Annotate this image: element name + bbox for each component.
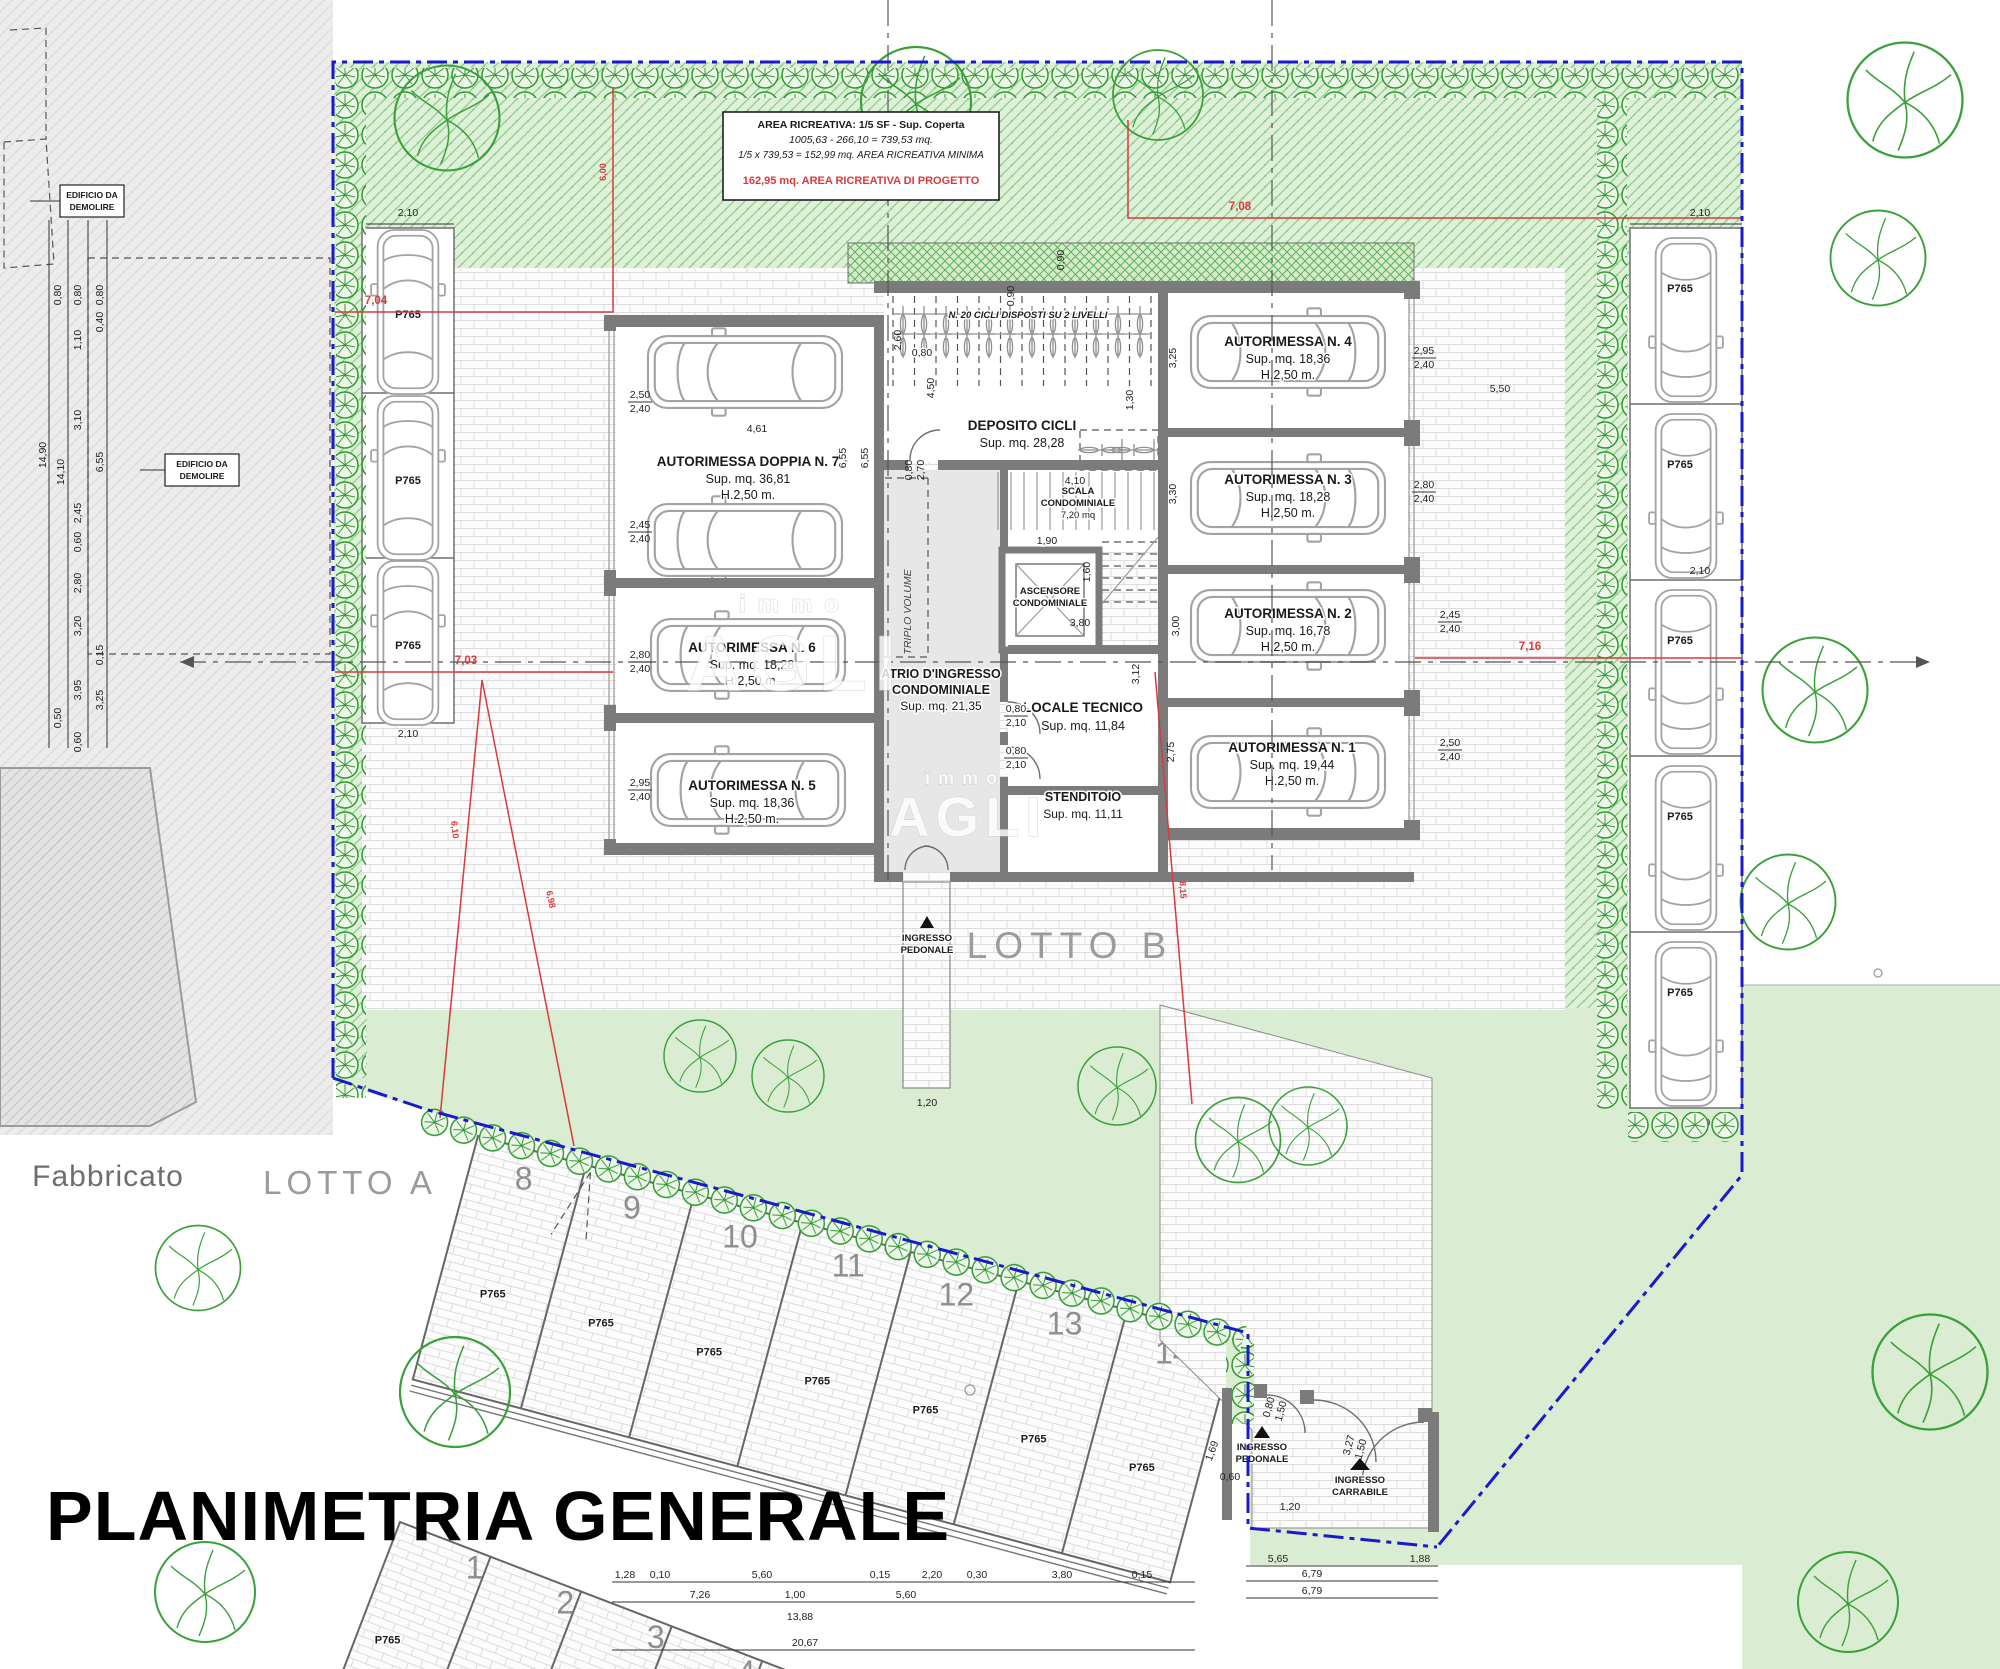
svg-text:13,88: 13,88	[787, 1611, 813, 1623]
svg-text:AUTORIMESSA N. 1: AUTORIMESSA N. 1	[1228, 740, 1356, 755]
svg-text:7,26: 7,26	[690, 1589, 711, 1601]
svg-text:3,80: 3,80	[1070, 617, 1091, 629]
svg-text:2,10: 2,10	[1006, 717, 1027, 729]
walkway-label: INGRESSO	[902, 933, 952, 944]
svg-text:2,50: 2,50	[1440, 737, 1461, 749]
svg-text:AUTORIMESSA N. 3: AUTORIMESSA N. 3	[1224, 472, 1352, 487]
area-box-line2: 1005,63 - 266,10 = 739,53 mq.	[789, 134, 933, 146]
svg-text:SCALA: SCALA	[1062, 486, 1095, 497]
svg-text:0,80: 0,80	[52, 285, 64, 306]
svg-text:CONDOMINIALE: CONDOMINIALE	[1041, 498, 1115, 509]
stall-code: P765	[1667, 635, 1693, 647]
stall-code: P765	[913, 1404, 939, 1416]
svg-text:3,80: 3,80	[1052, 1569, 1073, 1581]
svg-text:Sup. mq. 16,78: Sup. mq. 16,78	[1246, 624, 1331, 638]
car-icon	[648, 496, 842, 583]
svg-text:5,50: 5,50	[1490, 383, 1511, 395]
stall-code: P765	[1667, 987, 1693, 999]
svg-text:AUTORIMESSA N. 4: AUTORIMESSA N. 4	[1224, 334, 1352, 349]
svg-text:2,10: 2,10	[1006, 759, 1027, 771]
pedestrian-gate-label: INGRESSO	[1237, 1442, 1287, 1453]
svg-text:0,80: 0,80	[1006, 745, 1027, 757]
stall-code: P765	[1667, 811, 1693, 823]
red-dimension: 7,04	[365, 295, 388, 307]
svg-text:5,65: 5,65	[1268, 1553, 1289, 1565]
svg-text:6,79: 6,79	[1302, 1568, 1323, 1580]
svg-text:2,40: 2,40	[630, 403, 651, 415]
svg-text:5,60: 5,60	[752, 1569, 773, 1581]
svg-text:CONDOMINIALE: CONDOMINIALE	[1013, 598, 1087, 609]
svg-text:3,25: 3,25	[94, 690, 106, 711]
svg-text:6,55: 6,55	[94, 452, 106, 473]
stall-code: P765	[1129, 1462, 1155, 1474]
svg-text:0,90: 0,90	[1005, 286, 1017, 307]
svg-text:2,45: 2,45	[630, 519, 651, 531]
dimension-label: 2,10	[1690, 565, 1711, 577]
stall-code: P765	[1667, 459, 1693, 471]
svg-text:1,88: 1,88	[1410, 1553, 1431, 1565]
svg-text:20,67: 20,67	[792, 1637, 818, 1649]
svg-text:3,25: 3,25	[1167, 348, 1179, 369]
svg-text:2,45: 2,45	[1440, 609, 1461, 621]
area-ricreativa-box: AREA RICREATIVA: 1/5 SF - Sup. Coperta 1…	[723, 112, 999, 200]
svg-text:1,60: 1,60	[1081, 562, 1093, 583]
stall-code: P765	[1667, 283, 1693, 295]
red-dimension: 6,10	[449, 820, 461, 838]
svg-text:2,60: 2,60	[892, 330, 904, 351]
svg-text:2,80: 2,80	[630, 649, 651, 661]
car-icon	[648, 328, 842, 415]
walkway: INGRESSO PEDONALE 1,20	[901, 882, 954, 1109]
stall-number: 4	[737, 1654, 755, 1669]
left-parking-column: P765 P765 P765 2,10 2,10	[362, 207, 454, 740]
svg-text:0,80: 0,80	[94, 285, 106, 306]
svg-text:H.2,50 m.: H.2,50 m.	[1261, 640, 1315, 654]
svg-text:2,40: 2,40	[1414, 359, 1435, 371]
svg-text:6,55: 6,55	[859, 448, 871, 469]
stall-code: P765	[588, 1317, 614, 1329]
svg-text:AUTORIMESSA DOPPIA N. 7: AUTORIMESSA DOPPIA N. 7	[657, 454, 840, 469]
svg-text:4,61: 4,61	[747, 423, 768, 435]
car-icon	[1649, 414, 1723, 578]
svg-text:2,75: 2,75	[1165, 742, 1177, 763]
svg-text:immo: immo	[739, 591, 851, 618]
svg-text:2,45: 2,45	[72, 503, 84, 524]
svg-text:0,60: 0,60	[72, 532, 84, 553]
svg-text:2,40: 2,40	[630, 791, 651, 803]
red-dimension: 8,15	[1178, 881, 1189, 899]
svg-text:3,12: 3,12	[1130, 664, 1142, 685]
svg-text:DEPOSITO CICLI: DEPOSITO CICLI	[968, 418, 1077, 433]
svg-text:2,40: 2,40	[630, 533, 651, 545]
site-plan-svg: 8 9 10 11 12 13 14 P765 P765 P765 P765 P…	[0, 0, 2000, 1669]
svg-text:14,90: 14,90	[37, 442, 49, 468]
svg-text:7,20 mq: 7,20 mq	[1061, 510, 1095, 521]
svg-text:2,40: 2,40	[1440, 751, 1461, 763]
svg-text:2,95: 2,95	[630, 777, 651, 789]
red-dimension: 6,00	[598, 163, 608, 181]
svg-text:0,80: 0,80	[912, 347, 933, 359]
svg-text:2,70: 2,70	[915, 460, 927, 481]
stall-code: P765	[395, 475, 421, 487]
svg-text:AGLI: AGLI	[686, 619, 904, 707]
svg-text:CONDOMINIALE: CONDOMINIALE	[892, 683, 990, 697]
svg-text:H.2,50 m.: H.2,50 m.	[725, 812, 779, 826]
stall-code: P765	[696, 1346, 722, 1358]
svg-text:0,15: 0,15	[94, 645, 106, 666]
svg-text:H.2,50 m.: H.2,50 m.	[1261, 506, 1315, 520]
stall-number: 10	[722, 1219, 758, 1255]
red-dimension: 7,03	[455, 655, 477, 667]
svg-text:AGLI: AGLI	[889, 785, 1047, 848]
walkway-label2: PEDONALE	[901, 945, 954, 956]
stall-code: P765	[375, 1635, 401, 1647]
area-box-line4: 162,95 mq. AREA RICREATIVA DI PROGETTO	[743, 175, 980, 187]
svg-text:0,15: 0,15	[870, 1569, 891, 1581]
red-dimension: 7,16	[1519, 641, 1541, 653]
lawn-outside	[1742, 985, 2000, 1669]
svg-text:Sup. mq. 18,28: Sup. mq. 18,28	[1246, 490, 1331, 504]
drawing-title: PLANIMETRIA GENERALE	[46, 1477, 950, 1555]
svg-text:0,30: 0,30	[967, 1569, 988, 1581]
stall-number: 8	[515, 1161, 533, 1197]
svg-text:Sup. mq. 18,36: Sup. mq. 18,36	[1246, 352, 1331, 366]
svg-text:4,10: 4,10	[1065, 475, 1086, 487]
stall-number: 9	[623, 1190, 641, 1226]
svg-text:Sup. mq. 28,28: Sup. mq. 28,28	[980, 436, 1065, 450]
lotto-a-label: LOTTO A	[263, 1164, 437, 1201]
car-icon	[1649, 766, 1723, 930]
svg-text:3,20: 3,20	[72, 616, 84, 637]
svg-text:H.2,50 m.: H.2,50 m.	[1265, 774, 1319, 788]
svg-text:0,80: 0,80	[1006, 703, 1027, 715]
stall-number: 11	[832, 1248, 865, 1284]
svg-text:2,20: 2,20	[922, 1569, 943, 1581]
dimension-label: 2,10	[398, 207, 419, 219]
stall-code: P765	[395, 640, 421, 652]
svg-text:14,10: 14,10	[55, 459, 67, 485]
stall-number: 12	[939, 1277, 975, 1313]
svg-text:6,79: 6,79	[1302, 1585, 1323, 1597]
svg-text:1,00: 1,00	[785, 1589, 806, 1601]
car-icon	[1649, 238, 1723, 402]
svg-text:0,40: 0,40	[94, 312, 106, 333]
svg-text:Sup. mq. 36,81: Sup. mq. 36,81	[706, 472, 791, 486]
stall-number: 13	[1047, 1306, 1083, 1342]
svg-text:0,15: 0,15	[1132, 1569, 1153, 1581]
svg-text:Sup. mq. 11,11: Sup. mq. 11,11	[1043, 807, 1123, 821]
planted-roof-strip	[848, 243, 1414, 283]
stall-code: P765	[804, 1375, 830, 1387]
svg-text:1,30: 1,30	[1124, 390, 1136, 411]
svg-text:DEMOLIRE: DEMOLIRE	[70, 202, 115, 212]
lotto-b-label: LOTTO B	[967, 925, 1174, 966]
svg-text:H.2,50 m.: H.2,50 m.	[721, 488, 775, 502]
fabbricato-label: Fabbricato	[32, 1160, 184, 1193]
svg-text:2,95: 2,95	[1414, 345, 1435, 357]
stall-code: P765	[1021, 1433, 1047, 1445]
car-icon	[1649, 590, 1723, 754]
svg-text:2,80: 2,80	[72, 573, 84, 594]
stall-number: 2	[556, 1584, 574, 1620]
dimension-label: 1,20	[917, 1097, 938, 1109]
svg-text:Sup. mq. 11,84: Sup. mq. 11,84	[1041, 719, 1125, 733]
car-icon	[1649, 942, 1723, 1106]
svg-text:0,80: 0,80	[903, 460, 915, 481]
svg-text:H.2,50 m.: H.2,50 m.	[1261, 368, 1315, 382]
svg-text:1,28: 1,28	[615, 1569, 636, 1581]
svg-text:2,50: 2,50	[630, 389, 651, 401]
stall-code: P765	[395, 309, 421, 321]
svg-text:1,10: 1,10	[72, 330, 84, 351]
stall-code: P765	[480, 1288, 506, 1300]
svg-text:0,90: 0,90	[1055, 250, 1067, 271]
red-dimension: 7,08	[1229, 201, 1252, 213]
svg-text:1,20: 1,20	[1280, 1501, 1301, 1513]
site-plan-page: 8 9 10 11 12 13 14 P765 P765 P765 P765 P…	[0, 0, 2000, 1669]
svg-text:AUTORIMESSA N. 2: AUTORIMESSA N. 2	[1224, 606, 1352, 621]
svg-text:5,60: 5,60	[896, 1589, 917, 1601]
svg-text:AUTORIMESSA N. 5: AUTORIMESSA N. 5	[688, 778, 816, 793]
svg-text:0,50: 0,50	[52, 708, 64, 729]
svg-text:ASCENSORE: ASCENSORE	[1020, 586, 1080, 597]
svg-text:EDIFICIO DA: EDIFICIO DA	[66, 190, 117, 200]
svg-text:0,10: 0,10	[650, 1569, 671, 1581]
svg-text:2,40: 2,40	[630, 663, 651, 675]
dimension-label: 2,10	[398, 728, 419, 740]
svg-text:Sup. mq. 19,44: Sup. mq. 19,44	[1250, 758, 1335, 772]
svg-text:Sup. mq. 18,36: Sup. mq. 18,36	[710, 796, 795, 810]
svg-text:STENDITOIO: STENDITOIO	[1045, 790, 1121, 804]
pedestrian-gate-label2: PEDONALE	[1236, 1454, 1289, 1465]
svg-text:0,60: 0,60	[1220, 1471, 1241, 1483]
svg-text:0,80: 0,80	[72, 285, 84, 306]
dimension-label: 2,10	[1690, 207, 1711, 219]
svg-text:0,60: 0,60	[72, 732, 84, 753]
vehicle-gate-label: INGRESSO	[1335, 1475, 1385, 1486]
svg-text:2,80: 2,80	[1414, 479, 1435, 491]
svg-text:2,40: 2,40	[1414, 493, 1435, 505]
svg-text:1,90: 1,90	[1037, 535, 1058, 547]
right-parking-column: P765 P765 P765 P765 P765 2,10 2,10 2,10	[1630, 207, 1742, 1129]
svg-text:6,55: 6,55	[837, 448, 849, 469]
svg-text:LOCALE TECNICO: LOCALE TECNICO	[1023, 700, 1143, 715]
svg-text:3,10: 3,10	[72, 410, 84, 431]
svg-text:3,30: 3,30	[1167, 484, 1179, 505]
svg-text:2,40: 2,40	[1440, 623, 1461, 635]
bike-note: N. 20 CICLI DISPOSTI SU 2 LIVELLI	[949, 310, 1108, 321]
svg-text:4,50: 4,50	[925, 378, 937, 399]
area-box-line1: AREA RICREATIVA: 1/5 SF - Sup. Coperta	[758, 119, 965, 131]
svg-text:DEMOLIRE: DEMOLIRE	[180, 471, 225, 481]
svg-text:3,00: 3,00	[1170, 616, 1182, 637]
svg-text:EDIFICIO DA: EDIFICIO DA	[176, 459, 227, 469]
svg-text:Sup. mq. 21,35: Sup. mq. 21,35	[900, 699, 982, 713]
vehicle-gate-label2: CARRABILE	[1332, 1487, 1388, 1498]
svg-text:3,95: 3,95	[72, 680, 84, 701]
area-box-line3: 1/5 x 739,53 = 152,99 mq. AREA RICREATIV…	[738, 150, 984, 161]
